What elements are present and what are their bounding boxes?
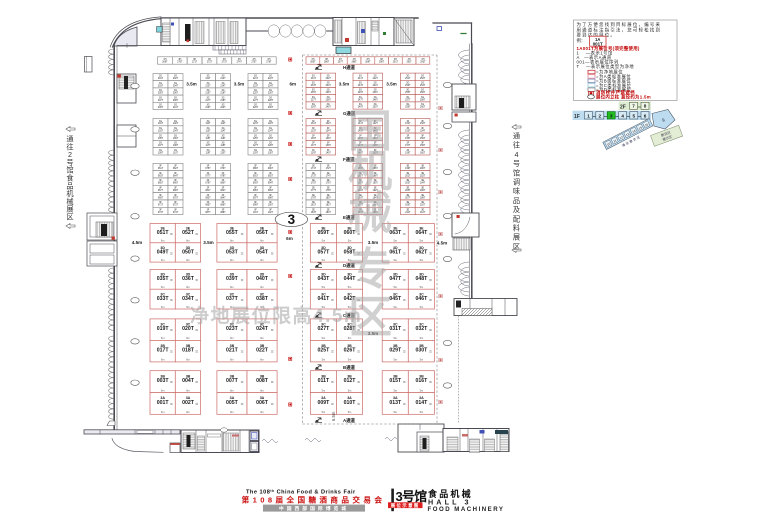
svg-text:205T: 205T	[405, 190, 411, 192]
svg-text:236T: 236T	[326, 92, 332, 94]
svg-text:126T: 126T	[268, 138, 274, 140]
svg-text:160T: 160T	[420, 152, 426, 154]
svg-text:015T: 015T	[389, 378, 402, 384]
svg-text:184T: 184T	[326, 212, 332, 214]
svg-text:配: 配	[513, 214, 520, 223]
svg-text:6m: 6m	[186, 410, 190, 414]
svg-text:5m: 5m	[393, 358, 397, 362]
svg-text:064T: 064T	[415, 230, 428, 236]
svg-text:064T: 064T	[173, 175, 179, 177]
svg-text:224T: 224T	[268, 85, 274, 87]
svg-text:4: 4	[621, 113, 624, 118]
svg-text:211T: 211T	[405, 212, 411, 214]
svg-text:068T: 068T	[173, 190, 179, 192]
svg-text:展位示意图: 展位示意图	[391, 502, 420, 509]
svg-text:101T: 101T	[253, 212, 259, 214]
svg-text:136T: 136T	[326, 138, 332, 140]
svg-text:123T: 123T	[253, 131, 259, 133]
svg-text:081T: 081T	[205, 190, 211, 192]
svg-text:158T: 158T	[420, 145, 426, 147]
svg-text:100T: 100T	[268, 205, 274, 207]
svg-text:6m: 6m	[260, 336, 264, 340]
svg-text:5m: 5m	[348, 358, 352, 362]
svg-text:030T: 030T	[415, 348, 428, 354]
svg-text:4: 4	[515, 150, 519, 159]
svg-text:6m: 6m	[186, 258, 190, 262]
svg-text:241T: 241T	[358, 78, 364, 80]
svg-text:091T: 091T	[253, 175, 259, 177]
svg-text:料: 料	[513, 224, 520, 233]
svg-text:288T: 288T	[351, 62, 357, 64]
svg-text:202T: 202T	[173, 78, 179, 80]
svg-text:133T: 133T	[311, 131, 317, 133]
svg-text:228T: 228T	[268, 100, 274, 102]
svg-text:026T: 026T	[344, 348, 357, 354]
svg-text:234T: 234T	[326, 85, 332, 87]
svg-text:004T: 004T	[182, 378, 195, 384]
svg-text:033T: 033T	[157, 296, 170, 302]
svg-text:6m: 6m	[186, 336, 190, 340]
svg-text:217T: 217T	[205, 100, 211, 102]
svg-text:074T: 074T	[173, 212, 179, 214]
svg-text:6m: 6m	[260, 285, 264, 289]
svg-text:208T: 208T	[173, 100, 179, 102]
svg-text:079T: 079T	[205, 183, 211, 185]
svg-text:5m: 5m	[348, 239, 352, 243]
svg-text:006T: 006T	[256, 400, 269, 406]
svg-text:055T: 055T	[226, 230, 239, 236]
svg-text:022T: 022T	[256, 348, 269, 354]
svg-text:117T: 117T	[205, 145, 211, 147]
svg-text:035T: 035T	[157, 276, 170, 282]
svg-text:176T: 176T	[326, 183, 332, 185]
svg-text:5m: 5m	[393, 285, 397, 289]
svg-text:037T: 037T	[226, 296, 239, 302]
svg-text:178T: 178T	[326, 190, 332, 192]
svg-text:6m: 6m	[230, 258, 234, 262]
svg-text:5m: 5m	[322, 285, 326, 289]
svg-text:255T: 255T	[405, 92, 411, 94]
svg-text:285T: 285T	[310, 62, 316, 64]
svg-text:FOOD MACHINERY: FOOD MACHINERY	[428, 506, 505, 513]
svg-text:036T: 036T	[182, 276, 195, 282]
svg-text:039T: 039T	[226, 276, 239, 282]
svg-text:139T: 139T	[311, 152, 317, 154]
svg-text:275T: 275T	[251, 62, 257, 64]
svg-text:102T: 102T	[268, 212, 274, 214]
svg-text:例：: 例：	[577, 37, 586, 44]
svg-text:展: 展	[513, 233, 520, 242]
svg-text:210T: 210T	[420, 205, 426, 207]
svg-text:5m: 5m	[393, 258, 397, 262]
svg-text:119T: 119T	[205, 152, 211, 154]
svg-text:203T: 203T	[158, 85, 164, 87]
svg-text:005T: 005T	[226, 400, 239, 406]
svg-text:057T: 057T	[317, 250, 330, 256]
svg-text:区: 区	[348, 293, 392, 342]
svg-text:通: 通	[513, 132, 520, 141]
svg-text:257T: 257T	[405, 99, 411, 101]
svg-text:269T: 269T	[162, 62, 168, 64]
svg-text:1: 1	[587, 113, 590, 118]
svg-text:003T: 003T	[157, 378, 170, 384]
svg-text:区: 区	[66, 213, 73, 222]
svg-text:071T: 071T	[158, 205, 164, 207]
svg-text:展位内立柱 直径约为1.5m: 展位内立柱 直径约为1.5m	[596, 93, 651, 100]
svg-text:5m: 5m	[420, 358, 424, 362]
svg-text:230T: 230T	[268, 107, 274, 109]
svg-text:056T: 056T	[256, 230, 269, 236]
svg-text:173T: 173T	[311, 175, 317, 177]
svg-text:5m: 5m	[322, 239, 326, 243]
svg-text:5m: 5m	[393, 388, 397, 392]
svg-text:212T: 212T	[420, 212, 426, 214]
svg-text:6m: 6m	[260, 258, 264, 262]
svg-text:021T: 021T	[226, 348, 239, 354]
svg-text:5m: 5m	[420, 258, 424, 262]
svg-text:052T: 052T	[182, 230, 195, 236]
svg-text:200T: 200T	[420, 168, 426, 170]
svg-text:3.5m: 3.5m	[203, 240, 213, 245]
svg-text:2F: 2F	[620, 104, 626, 110]
svg-text:105T: 105T	[158, 138, 164, 140]
svg-text:182T: 182T	[326, 205, 332, 207]
svg-text:专: 专	[348, 245, 392, 294]
svg-text:046T: 046T	[415, 296, 428, 302]
svg-text:6m: 6m	[161, 388, 165, 392]
svg-text:231T: 231T	[311, 78, 317, 80]
svg-text:293T: 293T	[420, 62, 426, 64]
svg-text:112T: 112T	[220, 123, 226, 125]
svg-text:馆: 馆	[513, 168, 520, 177]
svg-text:6m: 6m	[230, 388, 234, 392]
svg-text:086T: 086T	[220, 205, 226, 207]
svg-text:207T: 207T	[405, 197, 411, 199]
svg-text:018T: 018T	[182, 348, 195, 354]
svg-text:032T: 032T	[415, 326, 428, 332]
svg-text:272T: 272T	[207, 62, 213, 64]
svg-text:5m: 5m	[393, 305, 397, 309]
svg-text:130T: 130T	[268, 152, 274, 154]
svg-text:4.5m: 4.5m	[132, 240, 142, 245]
svg-text:008T: 008T	[256, 378, 269, 384]
svg-text:080T: 080T	[220, 183, 226, 185]
svg-text:292T: 292T	[406, 62, 412, 64]
svg-text:5m: 5m	[322, 388, 326, 392]
svg-text:180T: 180T	[326, 197, 332, 199]
svg-text:107T: 107T	[158, 145, 164, 147]
svg-text:011T: 011T	[318, 378, 330, 384]
svg-text:第108届全国糖酒商品交易会: 第108届全国糖酒商品交易会	[242, 494, 386, 504]
svg-text:净地展位限高4.5m: 净地展位限高4.5m	[190, 304, 362, 327]
svg-text:159T: 159T	[405, 152, 411, 154]
svg-text:171T: 171T	[311, 168, 317, 170]
svg-text:271T: 271T	[192, 62, 198, 64]
svg-text:085T: 085T	[205, 205, 211, 207]
svg-text:048T: 048T	[415, 276, 428, 282]
svg-text:3: 3	[288, 212, 296, 227]
svg-text:5m: 5m	[420, 388, 424, 392]
svg-text:6m: 6m	[161, 239, 165, 243]
svg-text:177T: 177T	[311, 190, 317, 192]
svg-text:040T: 040T	[256, 276, 269, 282]
svg-text:229T: 229T	[253, 107, 259, 109]
svg-text:115T: 115T	[205, 138, 211, 140]
svg-text:203T: 203T	[405, 183, 411, 185]
svg-text:256T: 256T	[420, 92, 426, 94]
svg-text:5m: 5m	[420, 239, 424, 243]
svg-text:010T: 010T	[344, 400, 357, 406]
svg-text:3.5m: 3.5m	[339, 82, 349, 87]
svg-text:102T: 102T	[173, 123, 179, 125]
svg-text:5m: 5m	[420, 410, 424, 414]
svg-text:124T: 124T	[268, 131, 274, 133]
svg-text:106T: 106T	[173, 138, 179, 140]
svg-text:219T: 219T	[205, 107, 211, 109]
svg-text:132T: 132T	[326, 123, 332, 125]
svg-text:121T: 121T	[253, 123, 259, 125]
svg-text:109T: 109T	[158, 152, 164, 154]
svg-text:179T: 179T	[311, 197, 317, 199]
svg-text:129T: 129T	[253, 152, 259, 154]
svg-text:070T: 070T	[173, 197, 179, 199]
svg-text:6m: 6m	[161, 410, 165, 414]
svg-text:287T: 287T	[338, 62, 344, 64]
svg-text:248T: 248T	[373, 99, 379, 101]
svg-text:6m: 6m	[260, 410, 264, 414]
svg-text:5m: 5m	[322, 410, 326, 414]
svg-text:206T: 206T	[420, 190, 426, 192]
svg-text:038T: 038T	[256, 296, 269, 302]
svg-text:154T: 154T	[420, 131, 426, 133]
svg-text:243T: 243T	[358, 85, 364, 87]
svg-text:240T: 240T	[326, 107, 332, 109]
svg-text:019T: 019T	[157, 326, 170, 332]
svg-text:082T: 082T	[220, 190, 226, 192]
svg-text:289T: 289T	[365, 62, 371, 64]
svg-text:5m: 5m	[322, 336, 326, 340]
svg-text:122T: 122T	[268, 123, 274, 125]
svg-text:135T: 135T	[311, 138, 317, 140]
svg-text:3.5m: 3.5m	[234, 82, 244, 87]
svg-text:往: 往	[513, 141, 520, 150]
svg-text:5m: 5m	[420, 305, 424, 309]
svg-text:001T: 001T	[157, 400, 170, 406]
svg-text:016T: 016T	[415, 378, 428, 384]
svg-text:245T: 245T	[358, 92, 364, 94]
svg-text:118T: 118T	[220, 145, 226, 147]
svg-text:072T: 072T	[173, 205, 179, 207]
svg-text:区: 区	[513, 242, 520, 251]
svg-text:3: 3	[610, 113, 613, 118]
svg-text:113T: 113T	[205, 131, 211, 133]
svg-text:270T: 270T	[177, 62, 183, 64]
svg-text:5m: 5m	[322, 258, 326, 262]
svg-text:7: 7	[632, 104, 635, 109]
svg-text:及: 及	[513, 205, 520, 214]
svg-text:209T: 209T	[158, 107, 164, 109]
svg-text:6m: 6m	[230, 239, 234, 243]
svg-text:216T: 216T	[220, 93, 226, 95]
svg-text:087T: 087T	[205, 212, 211, 214]
svg-text:212T: 212T	[220, 78, 226, 80]
svg-text:137T: 137T	[311, 145, 317, 147]
svg-text:096T: 096T	[268, 190, 274, 192]
svg-text:号: 号	[513, 159, 520, 168]
svg-text:054T: 054T	[256, 250, 269, 256]
svg-text:062T: 062T	[173, 168, 179, 170]
svg-text:B通道: B通道	[343, 364, 356, 371]
svg-text:156T: 156T	[420, 138, 426, 140]
svg-text:223T: 223T	[253, 85, 259, 87]
svg-text:6m: 6m	[230, 285, 234, 289]
svg-text:024T: 024T	[256, 326, 269, 332]
svg-text:1F: 1F	[574, 114, 580, 120]
svg-text:078T: 078T	[220, 175, 226, 177]
svg-text:6m: 6m	[289, 82, 296, 87]
svg-text:065T: 065T	[158, 183, 164, 185]
svg-text:238T: 238T	[326, 99, 332, 101]
svg-text:274T: 274T	[237, 62, 243, 64]
svg-text:A通道: A通道	[343, 417, 356, 424]
svg-text:073T: 073T	[158, 212, 164, 214]
svg-text:6m: 6m	[161, 358, 165, 362]
svg-text:5m: 5m	[393, 336, 397, 340]
svg-text:204T: 204T	[173, 85, 179, 87]
svg-text:5m: 5m	[348, 410, 352, 414]
svg-text:094T: 094T	[268, 183, 274, 185]
svg-text:6m: 6m	[161, 285, 165, 289]
svg-text:6m: 6m	[230, 336, 234, 340]
svg-text:175T: 175T	[311, 183, 317, 185]
svg-text:6m: 6m	[260, 358, 264, 362]
svg-text:153T: 153T	[405, 131, 411, 133]
svg-text:013T: 013T	[389, 400, 402, 406]
svg-text:059T: 059T	[317, 230, 330, 236]
svg-text:5m: 5m	[420, 336, 424, 340]
svg-text:6m: 6m	[161, 305, 165, 309]
svg-text:051T: 051T	[157, 230, 170, 236]
svg-text:093T: 093T	[253, 183, 259, 185]
svg-text:138T: 138T	[326, 145, 332, 147]
svg-text:041T: 041T	[317, 296, 330, 302]
svg-text:260T: 260T	[420, 107, 426, 109]
svg-text:207T: 207T	[158, 100, 164, 102]
svg-text:5m: 5m	[322, 358, 326, 362]
svg-text:211T: 211T	[205, 78, 211, 80]
svg-text:6m: 6m	[286, 236, 293, 241]
svg-text:味: 味	[513, 187, 520, 196]
svg-text:246T: 246T	[373, 92, 379, 94]
svg-text:084T: 084T	[220, 197, 226, 199]
svg-text:043T: 043T	[317, 276, 330, 282]
svg-text:204T: 204T	[420, 183, 426, 185]
svg-text:063T: 063T	[158, 175, 164, 177]
svg-text:290T: 290T	[379, 62, 385, 64]
svg-text:中国西部国际博览城: 中国西部国际博览城	[279, 505, 349, 512]
svg-text:108T: 108T	[173, 145, 179, 147]
svg-text:134T: 134T	[326, 131, 332, 133]
svg-text:215T: 215T	[205, 93, 211, 95]
svg-text:3.5m: 3.5m	[186, 82, 196, 87]
svg-text:088T: 088T	[220, 212, 226, 214]
svg-text:116T: 116T	[220, 138, 226, 140]
svg-text:5m: 5m	[393, 410, 397, 414]
svg-text:调: 调	[513, 178, 520, 187]
svg-text:221T: 221T	[253, 78, 259, 80]
svg-text:140T: 140T	[326, 152, 332, 154]
svg-text:183T: 183T	[311, 212, 317, 214]
svg-text:6m: 6m	[260, 388, 264, 392]
svg-text:4.5m: 4.5m	[437, 241, 447, 246]
svg-text:258T: 258T	[420, 99, 426, 101]
svg-text:5m: 5m	[393, 239, 397, 243]
svg-text:128T: 128T	[268, 145, 274, 147]
svg-text:225T: 225T	[253, 93, 259, 95]
svg-text:209T: 209T	[405, 205, 411, 207]
svg-text:049T: 049T	[157, 250, 170, 256]
svg-text:103T: 103T	[158, 131, 164, 133]
svg-text:6m: 6m	[186, 388, 190, 392]
svg-text:233T: 233T	[311, 85, 317, 87]
svg-text:114T: 114T	[220, 131, 226, 133]
svg-text:206T: 206T	[173, 93, 179, 95]
svg-text:131T: 131T	[311, 123, 317, 125]
svg-text:066T: 066T	[173, 183, 179, 185]
svg-text:253T: 253T	[405, 85, 411, 87]
svg-text:104T: 104T	[173, 131, 179, 133]
svg-text:009T: 009T	[317, 400, 330, 406]
svg-text:214T: 214T	[220, 85, 226, 87]
svg-text:5m: 5m	[420, 285, 424, 289]
svg-text:239T: 239T	[311, 107, 317, 109]
svg-text:061T: 061T	[158, 168, 164, 170]
svg-text:213T: 213T	[205, 85, 211, 87]
svg-text:202T: 202T	[420, 175, 426, 177]
svg-text:099T: 099T	[253, 205, 259, 207]
svg-text:172T: 172T	[326, 168, 332, 170]
svg-text:110T: 110T	[173, 152, 179, 154]
svg-text:8: 8	[644, 104, 647, 109]
svg-text:械: 械	[348, 189, 392, 238]
svg-text:017T: 017T	[157, 348, 170, 354]
svg-text:127T: 127T	[253, 145, 259, 147]
svg-text:002T: 002T	[182, 400, 195, 406]
svg-text:174T: 174T	[326, 175, 332, 177]
svg-text:286T: 286T	[324, 62, 330, 64]
svg-text:259T: 259T	[405, 107, 411, 109]
svg-text:235T: 235T	[311, 92, 317, 94]
svg-text:6m: 6m	[186, 285, 190, 289]
svg-text:6m: 6m	[186, 358, 190, 362]
svg-text:092T: 092T	[268, 175, 274, 177]
svg-text:157T: 157T	[405, 145, 411, 147]
svg-text:012T: 012T	[344, 378, 357, 384]
svg-text:201T: 201T	[158, 78, 164, 80]
svg-text:291T: 291T	[393, 62, 399, 64]
svg-text:205T: 205T	[158, 93, 164, 95]
svg-text:6m: 6m	[186, 239, 190, 243]
svg-text:098T: 098T	[268, 197, 274, 199]
svg-text:208T: 208T	[420, 197, 426, 199]
svg-text:232T: 232T	[326, 78, 332, 80]
svg-text:023T: 023T	[226, 326, 239, 332]
svg-text:075T: 075T	[205, 168, 211, 170]
svg-text:6m: 6m	[230, 358, 234, 362]
svg-text:6: 6	[644, 113, 647, 118]
svg-text:251T: 251T	[405, 78, 411, 80]
svg-text:6m: 6m	[161, 258, 165, 262]
